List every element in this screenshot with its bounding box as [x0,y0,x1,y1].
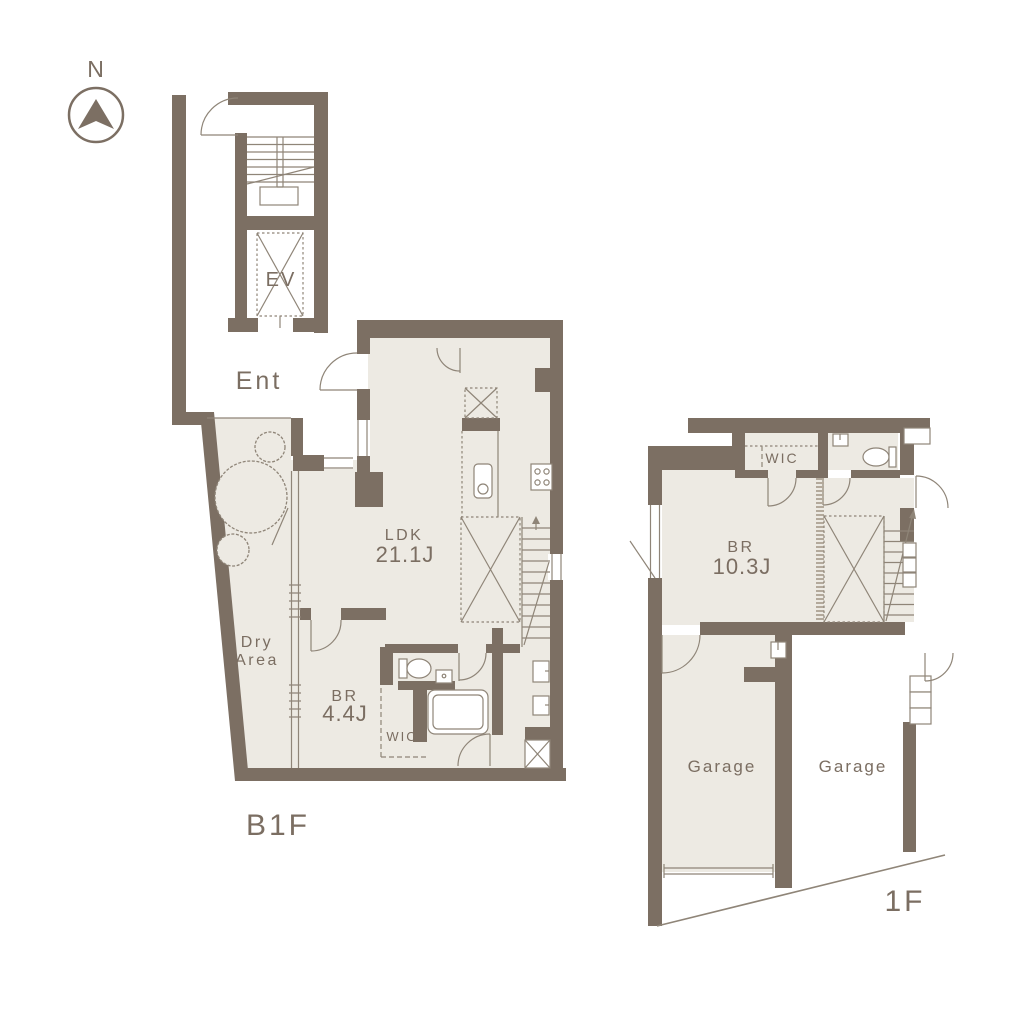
b1f-bathroom [428,690,488,734]
f1-bedroom-size-label: 10.3J [713,554,772,579]
wic-label: WIC [386,729,417,744]
f1-floor-label: 1F [884,885,925,918]
b1f-entrance-door [320,353,357,390]
toilet-icon [407,659,431,678]
f1-entry-steps [903,543,931,724]
f1-west-door [630,505,660,578]
entrance-label: Ent [236,367,283,395]
f1-plan: WIC BR 10.3J Garage Garage 1F [630,418,953,926]
bedroom-size-label: 4.4J [322,701,368,726]
tree-icon [255,432,285,462]
stove-icon [531,464,552,490]
b1f-stairwell [201,98,314,205]
dry-area-label-1: Dry [241,634,273,651]
toilet-tank [889,447,896,467]
tree-icon [215,461,287,533]
north-arrow-icon [78,99,114,129]
dry-area-label-2: Area [235,652,279,669]
washbasin-icon [436,670,452,683]
f1-hall-floor [820,478,914,622]
b1f-floor-label: B1F [246,809,310,842]
north-arrow: N [69,56,123,142]
garage-left-label: Garage [688,757,757,776]
north-label: N [87,56,105,82]
b1f-elevator: EV [257,233,303,328]
b1f-plan: EV [172,92,566,842]
kitchen-sink [474,464,492,498]
f1-wic-label: WIC [765,450,798,466]
floor-plan-page: N [0,0,1024,1024]
elevator-label: EV [266,269,297,291]
toilet-tank [399,659,407,678]
bathtub-icon [428,690,488,734]
toilet-icon [863,448,889,466]
ldk-north-floor [368,338,550,463]
ldk-size-label: 21.1J [376,542,435,567]
f1-meter-box [771,642,786,658]
garage-right-label: Garage [819,757,888,776]
tree-icon [217,534,249,566]
floor-plan-canvas: N [0,0,1024,1024]
pipe-shaft-notch [904,428,930,444]
f1-entrance-door [916,476,948,508]
